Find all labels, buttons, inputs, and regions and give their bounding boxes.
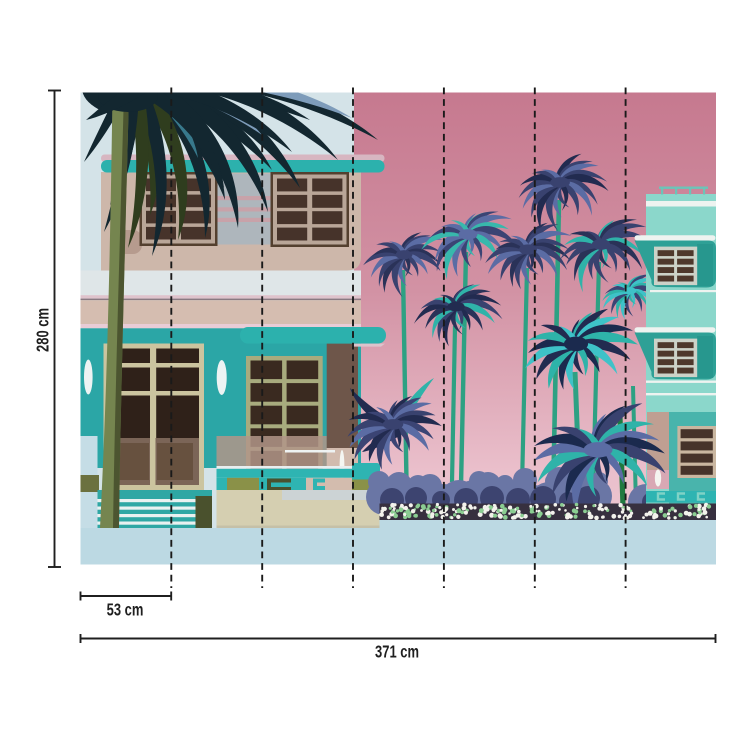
svg-text:53 cm: 53 cm — [107, 601, 144, 621]
svg-text:280 cm: 280 cm — [34, 308, 54, 352]
svg-text:371 cm: 371 cm — [375, 643, 419, 663]
